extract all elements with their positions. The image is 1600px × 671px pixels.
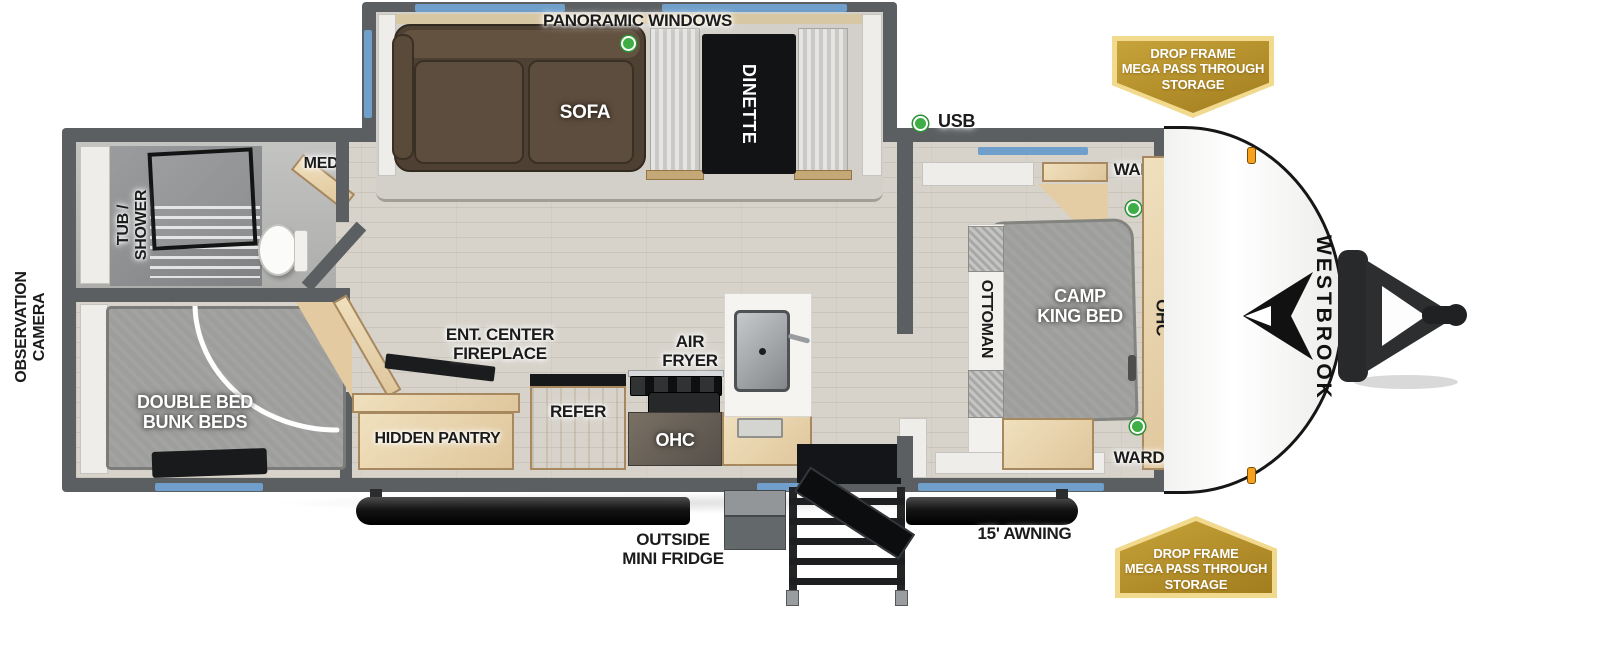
entry-steps	[785, 485, 909, 597]
camp-king-bed-label: CAMP KING BED	[1030, 286, 1130, 326]
tongue-hitch	[1336, 242, 1468, 392]
toilet-bowl	[258, 224, 298, 276]
badge-top-line3: STORAGE	[1112, 77, 1274, 92]
refer-label: REFER	[540, 402, 616, 421]
ottoman-cushion-bottom	[968, 370, 1004, 418]
badge-bottom-line1: DROP FRAME	[1115, 546, 1277, 561]
outside-fridge-box-top	[724, 490, 786, 516]
air-fryer-label: AIR FRYER	[655, 332, 725, 370]
step-rung	[789, 578, 905, 585]
air-fryer-line1: AIR	[655, 332, 725, 351]
tub-shower-label: TUB / SHOWER	[115, 165, 155, 285]
toilet-tank	[294, 230, 308, 272]
step-rung	[789, 558, 905, 565]
hidden-pantry-label: HIDDEN PANTRY	[365, 430, 510, 448]
bedroom-wall	[897, 142, 913, 334]
awning-tube-right	[906, 497, 1078, 525]
bunk-cabinet	[80, 304, 108, 474]
bunk-bottom-window	[155, 483, 263, 491]
storage-badge-bottom-text: DROP FRAME MEGA PASS THROUGH STORAGE	[1115, 546, 1277, 592]
tub-shower-line2: SHOWER	[133, 165, 151, 285]
awning-label: 15' AWNING	[972, 524, 1077, 543]
step-foot-right	[895, 590, 908, 606]
storage-badge-top-text: DROP FRAME MEGA PASS THROUGH STORAGE	[1112, 46, 1274, 92]
brand-label: WESTBROOK	[1305, 235, 1335, 395]
bathroom-cabinet	[80, 146, 110, 284]
panoramic-windows-label: PANORAMIC WINDOWS	[540, 11, 735, 30]
badge-bottom-line3: STORAGE	[1115, 577, 1277, 592]
storage-badge-top: DROP FRAME MEGA PASS THROUGH STORAGE	[1112, 36, 1274, 118]
ent-center-label: ENT. CENTER FIREPLACE	[430, 325, 570, 363]
badge-top-line1: DROP FRAME	[1112, 46, 1274, 61]
bedroom-bottom-window	[918, 483, 1104, 491]
badge-top-line2: MEGA PASS THROUGH	[1112, 61, 1274, 76]
pantry-counter-top	[352, 393, 520, 413]
bedroom-top-window	[978, 147, 1088, 155]
tub-shower-line1: TUB /	[115, 165, 133, 285]
westbrook-arrow-icon	[1243, 272, 1313, 360]
marker-light-bottom-icon	[1247, 467, 1256, 484]
usb-label: USB	[938, 111, 988, 131]
usb-indicator-icon	[913, 116, 928, 131]
sofa-back	[400, 30, 640, 58]
ward-top-indicator-icon	[1126, 201, 1141, 216]
shower-glass-door	[148, 147, 258, 250]
sofa-armrest	[392, 34, 414, 160]
ottoman-label: OTTOMAN	[977, 263, 995, 375]
dinette-label: DINETTE	[739, 45, 759, 163]
panoramic-indicator-icon	[621, 36, 636, 51]
bath-right-wall	[336, 142, 349, 222]
observation-camera-label: OBSERVATION CAMERA	[13, 252, 53, 402]
step-foot-left	[786, 590, 799, 606]
storage-badge-bottom: DROP FRAME MEGA PASS THROUGH STORAGE	[1115, 516, 1277, 598]
sofa-label: SOFA	[540, 102, 630, 123]
dinette-bench-left	[650, 28, 700, 172]
kitchen-ohc-label: OHC	[645, 430, 705, 450]
bedroom-shelf	[922, 162, 1034, 186]
bunk-bed-label: DOUBLE BED BUNK BEDS	[125, 392, 265, 432]
bunk-curtain-arc	[106, 306, 346, 470]
awning-bracket-right	[1056, 489, 1068, 499]
slideout-side-wall-right	[862, 14, 882, 176]
small-sink	[737, 418, 783, 438]
badge-bottom-line2: MEGA PASS THROUGH	[1115, 561, 1277, 576]
outside-fridge-line2: MINI FRIDGE	[608, 549, 738, 568]
bunk-bed-line1: DOUBLE BED	[125, 392, 265, 412]
dinette-bench-right	[798, 28, 848, 172]
ward-bottom-cabinet	[1002, 418, 1094, 470]
bunk-bed-line2: BUNK BEDS	[125, 412, 265, 432]
sink-drain	[759, 348, 766, 355]
refer	[530, 386, 626, 470]
outside-mini-fridge-label: OUTSIDE MINI FRIDGE	[608, 530, 738, 568]
ent-center-line2: FIREPLACE	[430, 344, 570, 363]
sofa-cushion-left	[414, 60, 524, 164]
camp-king-line2: KING BED	[1030, 306, 1130, 326]
observation-line2: CAMERA	[31, 252, 49, 402]
floorplan-canvas: SOFA DINETTE PANORAMIC WINDOWS TUB / SHO…	[0, 0, 1600, 671]
bedroom-wall-stub	[897, 436, 913, 478]
ward-bottom-indicator-icon	[1130, 419, 1145, 434]
bath-bunk-divider-wall	[62, 288, 350, 302]
awning-tube-left	[356, 497, 690, 525]
marker-light-top-icon	[1247, 147, 1256, 164]
dinette-bench-base-right	[794, 170, 852, 180]
air-fryer-line2: FRYER	[655, 351, 725, 370]
ent-center-line1: ENT. CENTER	[430, 325, 570, 344]
observation-line1: OBSERVATION	[13, 252, 31, 402]
dinette-bench-base-left	[646, 170, 704, 180]
slideout-window-side	[364, 30, 372, 118]
outside-fridge-line1: OUTSIDE	[608, 530, 738, 549]
camp-king-line1: CAMP	[1030, 286, 1130, 306]
bed-handle	[1128, 355, 1136, 381]
bunk-step	[152, 448, 268, 478]
